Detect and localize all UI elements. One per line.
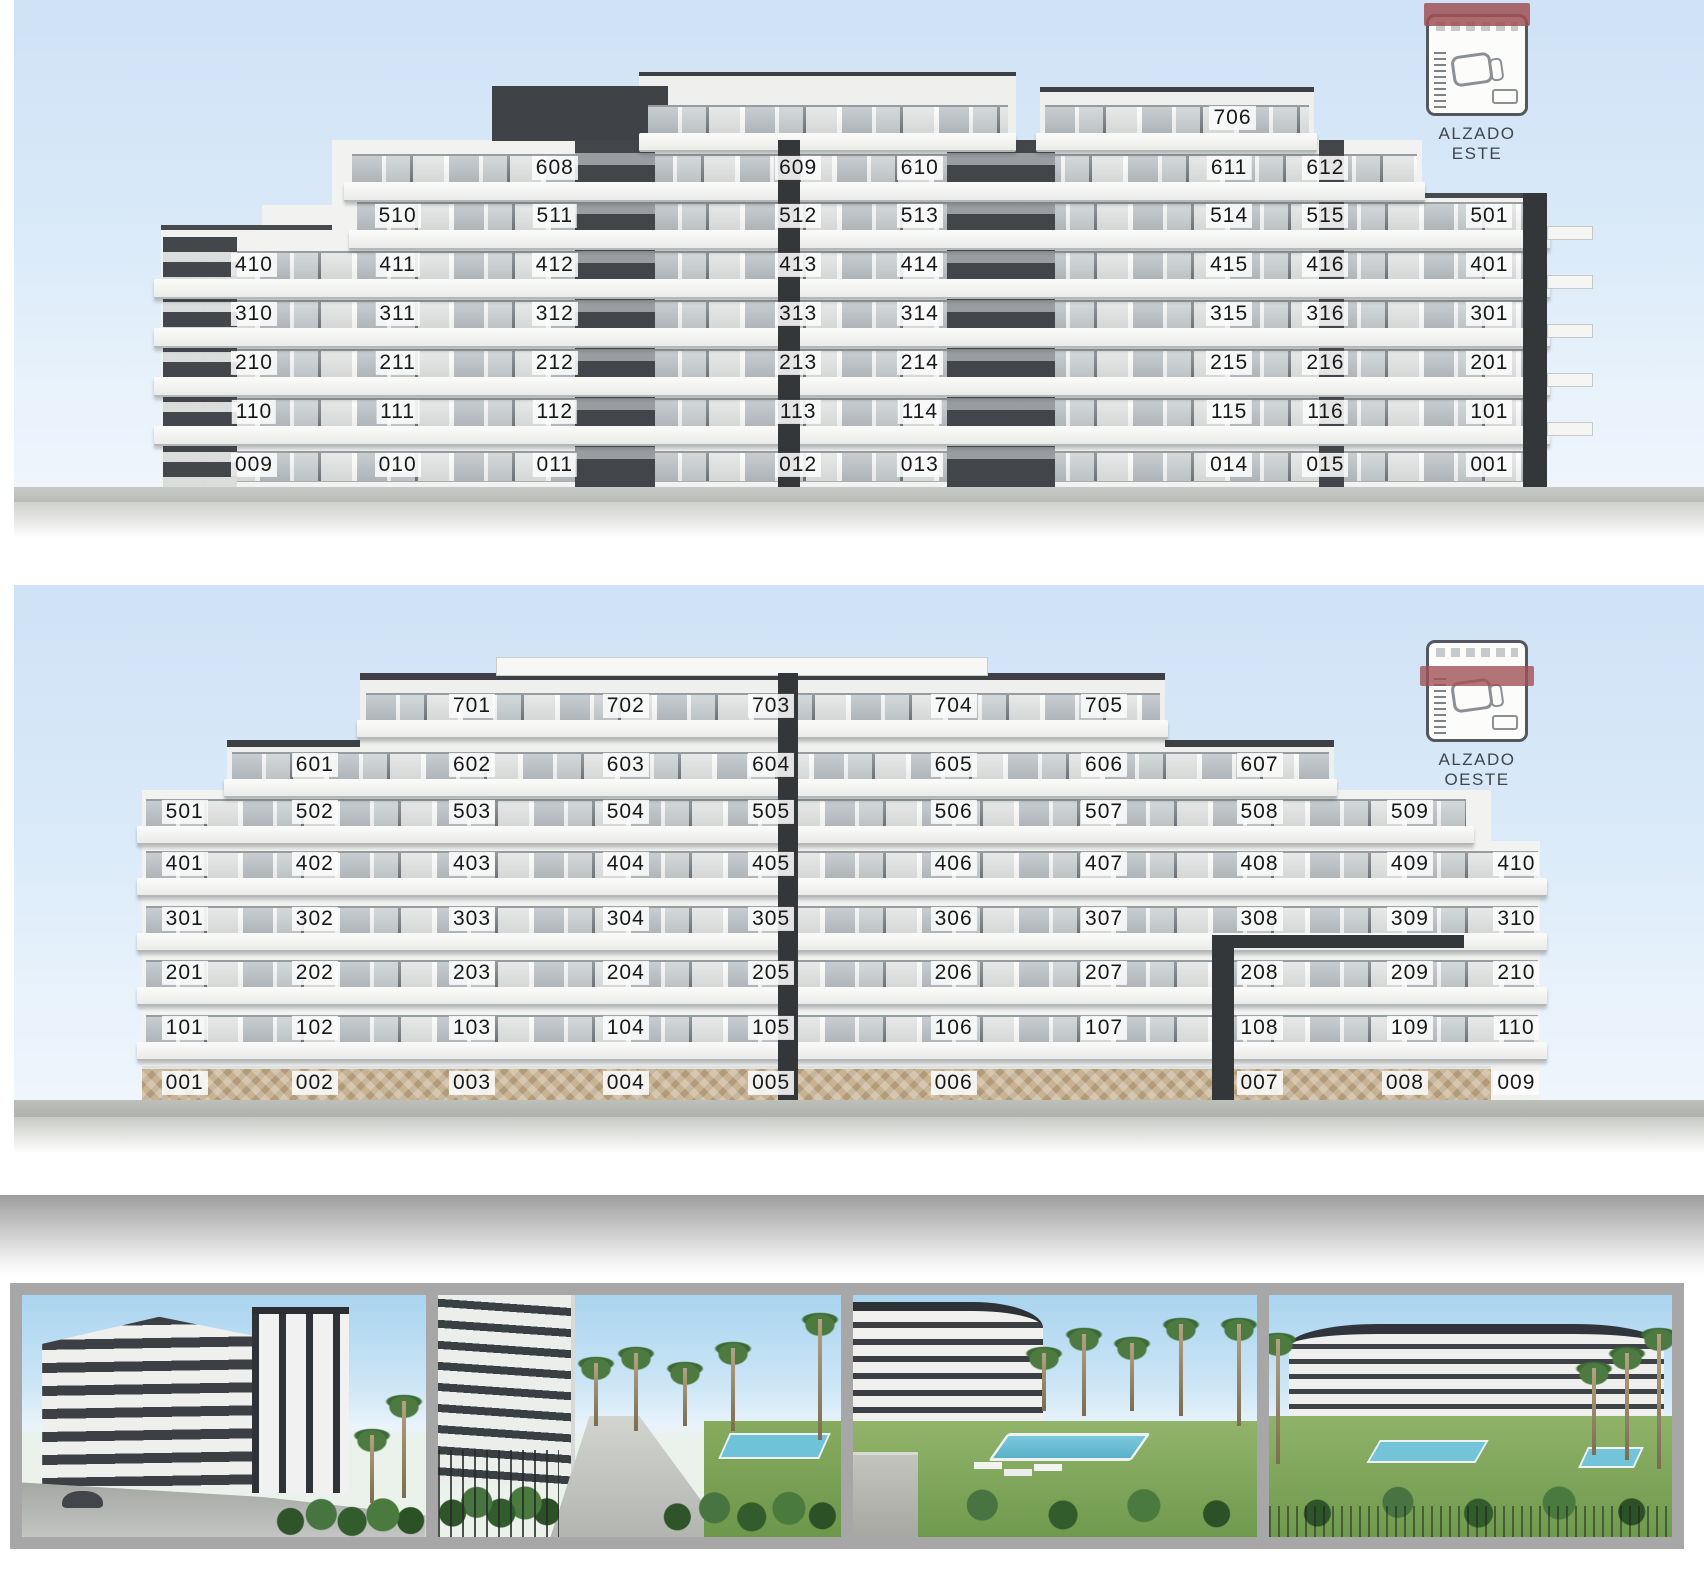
unit-number-010: 010	[375, 453, 421, 477]
unit-number-207: 207	[1081, 961, 1127, 985]
elevation-panel-east: 7066086096106116125105115125135145155014…	[14, 0, 1704, 545]
palm-tree	[680, 1368, 690, 1426]
balcony-slab	[1036, 133, 1317, 152]
unit-number-301: 301	[1466, 302, 1512, 326]
unit-number-414: 414	[897, 253, 943, 277]
palm-tree	[1273, 1339, 1283, 1465]
building-render	[252, 1307, 349, 1493]
unit-number-202: 202	[292, 961, 338, 985]
highlighted-facade-west	[1420, 666, 1534, 686]
unit-number-502: 502	[292, 800, 338, 824]
unit-number-107: 107	[1081, 1016, 1127, 1040]
side-balcony	[1547, 226, 1593, 240]
shrubs	[272, 1496, 425, 1537]
render-photo-4	[1269, 1295, 1673, 1537]
unit-number-208: 208	[1236, 961, 1282, 985]
window-band	[352, 154, 1417, 184]
side-balcony	[1547, 324, 1593, 338]
unit-number-316: 316	[1302, 302, 1348, 326]
unit-number-411: 411	[375, 253, 419, 277]
unit-number-110: 110	[1494, 1016, 1538, 1040]
unit-number-704: 704	[931, 694, 977, 718]
unit-number-114: 114	[898, 400, 942, 424]
ground-line	[14, 1100, 1704, 1117]
unit-number-215: 215	[1206, 351, 1252, 375]
unit-number-206: 206	[931, 961, 977, 985]
unit-number-015: 015	[1302, 453, 1348, 477]
unit-number-012: 012	[775, 453, 821, 477]
unit-number-115: 115	[1207, 400, 1251, 424]
unit-number-513: 513	[897, 204, 943, 228]
unit-number-609: 609	[775, 156, 821, 180]
right-step-pier	[1212, 935, 1234, 1100]
side-balcony	[1547, 422, 1593, 436]
unit-number-303: 303	[449, 907, 495, 931]
unit-number-403: 403	[449, 852, 495, 876]
unit-number-006: 006	[931, 1071, 977, 1095]
roof-parapet	[496, 657, 988, 676]
unit-number-013: 013	[897, 453, 943, 477]
unit-number-606: 606	[1081, 753, 1127, 777]
window-band	[146, 851, 1539, 880]
unit-number-604: 604	[748, 753, 794, 777]
pool	[1367, 1440, 1489, 1463]
palm-tree	[728, 1348, 738, 1430]
unit-number-014: 014	[1206, 453, 1252, 477]
unit-number-201: 201	[162, 961, 208, 985]
unit-number-410: 410	[1493, 852, 1539, 876]
unit-number-311: 311	[375, 302, 419, 326]
unit-number-501: 501	[162, 800, 208, 824]
balcony-slab	[639, 133, 1016, 152]
render-photo-3	[853, 1295, 1257, 1537]
key-plan-east: ALZADO ESTE	[1418, 0, 1536, 164]
unit-number-308: 308	[1236, 907, 1282, 931]
balcony-slab	[154, 328, 1550, 347]
key-plan-west: ALZADO OESTE	[1418, 640, 1536, 790]
balcony-slab	[154, 377, 1550, 396]
unit-number-706: 706	[1209, 106, 1255, 130]
unit-number-612: 612	[1302, 156, 1348, 180]
unit-number-701: 701	[449, 694, 495, 718]
unit-number-103: 103	[449, 1016, 495, 1040]
unit-number-401: 401	[162, 852, 208, 876]
unit-number-109: 109	[1387, 1016, 1433, 1040]
car-icon	[1492, 715, 1518, 730]
unit-number-610: 610	[897, 156, 943, 180]
unit-number-703: 703	[748, 694, 794, 718]
shrubs	[655, 1484, 841, 1537]
unit-number-101: 101	[162, 1016, 208, 1040]
retaining-wall	[853, 1452, 918, 1537]
unit-number-314: 314	[897, 302, 943, 326]
balcony-slab	[137, 1042, 1546, 1061]
unit-number-503: 503	[449, 800, 495, 824]
render-photo-2	[438, 1295, 842, 1537]
ground-fade	[14, 1117, 1704, 1160]
unit-number-702: 702	[603, 694, 649, 718]
unit-number-204: 204	[603, 961, 649, 985]
palm-tree	[1079, 1334, 1089, 1416]
unit-number-306: 306	[931, 907, 977, 931]
car-icon	[1492, 89, 1518, 104]
highlighted-facade-east	[1424, 3, 1530, 26]
pool	[1578, 1447, 1644, 1468]
roof-teeth-icon	[1436, 648, 1518, 657]
unit-number-304: 304	[603, 907, 649, 931]
unit-number-705: 705	[1081, 694, 1127, 718]
palm-tree	[815, 1319, 825, 1440]
window-band	[1045, 105, 1309, 135]
balcony-slab	[344, 182, 1426, 201]
unit-number-111: 111	[376, 400, 419, 424]
unit-number-307: 307	[1081, 907, 1127, 931]
unit-number-212: 212	[532, 351, 578, 375]
palm-tree	[1234, 1324, 1244, 1426]
unit-number-302: 302	[292, 907, 338, 931]
small-outline-icon	[1488, 683, 1504, 708]
tower-checker-facade	[163, 237, 237, 487]
right-step-band	[1212, 935, 1464, 948]
unit-number-608: 608	[532, 156, 578, 180]
unit-number-301: 301	[162, 907, 208, 931]
unit-number-410: 410	[231, 253, 277, 277]
unit-number-110: 110	[232, 400, 276, 424]
unit-number-602: 602	[449, 753, 495, 777]
unit-number-216: 216	[1302, 351, 1348, 375]
side-balcony	[1547, 275, 1593, 289]
unit-number-108: 108	[1236, 1016, 1282, 1040]
unit-number-512: 512	[775, 204, 821, 228]
unit-number-203: 203	[449, 961, 495, 985]
palm-tree	[1039, 1353, 1049, 1411]
unit-number-211: 211	[375, 351, 419, 375]
balcony-slab	[349, 230, 1551, 249]
unit-number-505: 505	[748, 800, 794, 824]
unit-number-504: 504	[603, 800, 649, 824]
unit-number-001: 001	[162, 1071, 208, 1095]
unit-number-407: 407	[1081, 852, 1127, 876]
unit-number-009: 009	[1493, 1071, 1539, 1095]
unit-number-101: 101	[1466, 400, 1512, 424]
unit-number-508: 508	[1236, 800, 1282, 824]
unit-number-404: 404	[603, 852, 649, 876]
unit-number-603: 603	[603, 753, 649, 777]
unit-number-214: 214	[897, 351, 943, 375]
architectural-sheet: 7066086096106116125105115125135145155014…	[0, 0, 1704, 1591]
unit-number-102: 102	[292, 1016, 338, 1040]
unit-number-413: 413	[775, 253, 821, 277]
unit-number-106: 106	[931, 1016, 977, 1040]
unit-number-607: 607	[1236, 753, 1282, 777]
unit-number-005: 005	[748, 1071, 794, 1095]
window-band	[146, 906, 1539, 935]
balcony-slab	[154, 426, 1550, 445]
unit-number-210: 210	[231, 351, 277, 375]
unit-number-507: 507	[1081, 800, 1127, 824]
key-plan-icon	[1426, 14, 1528, 116]
unit-number-402: 402	[292, 852, 338, 876]
unit-number-113: 113	[776, 400, 820, 424]
building-render	[42, 1317, 276, 1486]
photo-panel	[10, 1283, 1684, 1549]
window-band	[146, 960, 1539, 989]
unit-number-003: 003	[449, 1071, 495, 1095]
balcony-slab	[137, 878, 1546, 897]
unit-number-310: 310	[1493, 907, 1539, 931]
palm-tree	[1127, 1343, 1137, 1411]
pool	[989, 1433, 1152, 1461]
palm-tree	[1654, 1334, 1664, 1470]
unit-number-312: 312	[532, 302, 578, 326]
unit-number-511: 511	[533, 204, 577, 228]
unit-number-510: 510	[375, 204, 421, 228]
unit-number-501: 501	[1466, 204, 1512, 228]
unit-number-104: 104	[603, 1016, 649, 1040]
unit-number-305: 305	[748, 907, 794, 931]
unit-number-009: 009	[231, 453, 277, 477]
fence	[1269, 1506, 1673, 1537]
unit-number-605: 605	[931, 753, 977, 777]
unit-number-105: 105	[748, 1016, 794, 1040]
right-edge-pier	[1523, 193, 1547, 487]
balcony-slab	[137, 826, 1474, 845]
ground-fade	[14, 502, 1704, 545]
window-band	[648, 105, 1008, 135]
small-outline-icon	[1488, 57, 1504, 82]
unit-number-116: 116	[1303, 400, 1347, 424]
palm-tree	[1622, 1353, 1632, 1459]
unit-number-509: 509	[1387, 800, 1433, 824]
elevation-panel-west: 7017027037047056016026036046056066075015…	[14, 585, 1704, 1160]
unit-number-004: 004	[603, 1071, 649, 1095]
unit-number-011: 011	[533, 453, 577, 477]
balcony-slab	[357, 720, 1168, 739]
photo-strip	[0, 1195, 1704, 1591]
stone-plinth-wall	[142, 1066, 1491, 1101]
unit-number-406: 406	[931, 852, 977, 876]
unit-number-409: 409	[1387, 852, 1433, 876]
unit-number-002: 002	[292, 1071, 338, 1095]
unit-number-210: 210	[1493, 961, 1539, 985]
palm-tree	[1589, 1368, 1599, 1455]
unit-number-310: 310	[231, 302, 277, 326]
strip-shadow	[0, 1195, 1704, 1277]
unit-number-008: 008	[1382, 1071, 1428, 1095]
unit-number-506: 506	[931, 800, 977, 824]
unit-number-514: 514	[1206, 204, 1252, 228]
balcony-slab	[137, 987, 1546, 1006]
ground-line	[14, 487, 1704, 502]
unit-number-405: 405	[748, 852, 794, 876]
unit-number-415: 415	[1206, 253, 1252, 277]
palm-tree	[591, 1363, 601, 1426]
unit-number-515: 515	[1302, 204, 1348, 228]
palm-tree	[631, 1353, 641, 1430]
render-photo-1	[22, 1295, 426, 1537]
balcony-slab	[154, 279, 1550, 298]
palm-tree	[367, 1435, 377, 1503]
car	[62, 1491, 102, 1508]
pool	[718, 1433, 830, 1459]
unit-number-309: 309	[1387, 907, 1433, 931]
window-band	[146, 1015, 1539, 1044]
unit-number-007: 007	[1236, 1071, 1282, 1095]
hatch-strip-icon	[1434, 50, 1446, 108]
palm-tree	[399, 1401, 409, 1498]
key-plan-icon	[1426, 640, 1528, 742]
elevation-title-east: ALZADO ESTE	[1418, 124, 1536, 164]
elevation-title-west: ALZADO OESTE	[1418, 750, 1536, 790]
unit-number-112: 112	[533, 400, 577, 424]
unit-number-315: 315	[1206, 302, 1252, 326]
unit-number-209: 209	[1387, 961, 1433, 985]
unit-number-408: 408	[1236, 852, 1282, 876]
unit-number-205: 205	[748, 961, 794, 985]
unit-number-611: 611	[1207, 156, 1251, 180]
side-balcony	[1547, 373, 1593, 387]
unit-number-213: 213	[775, 351, 821, 375]
unit-number-601: 601	[292, 753, 338, 777]
palm-tree	[1176, 1324, 1186, 1416]
sun-loungers	[974, 1462, 1002, 1469]
unit-number-201: 201	[1466, 351, 1512, 375]
unit-number-001: 001	[1466, 453, 1512, 477]
fence	[438, 1450, 559, 1537]
pool-outline-icon	[1450, 51, 1494, 87]
building-render	[853, 1302, 1043, 1437]
unit-number-416: 416	[1302, 253, 1348, 277]
unit-number-412: 412	[532, 253, 578, 277]
unit-number-313: 313	[775, 302, 821, 326]
unit-number-401: 401	[1466, 253, 1512, 277]
